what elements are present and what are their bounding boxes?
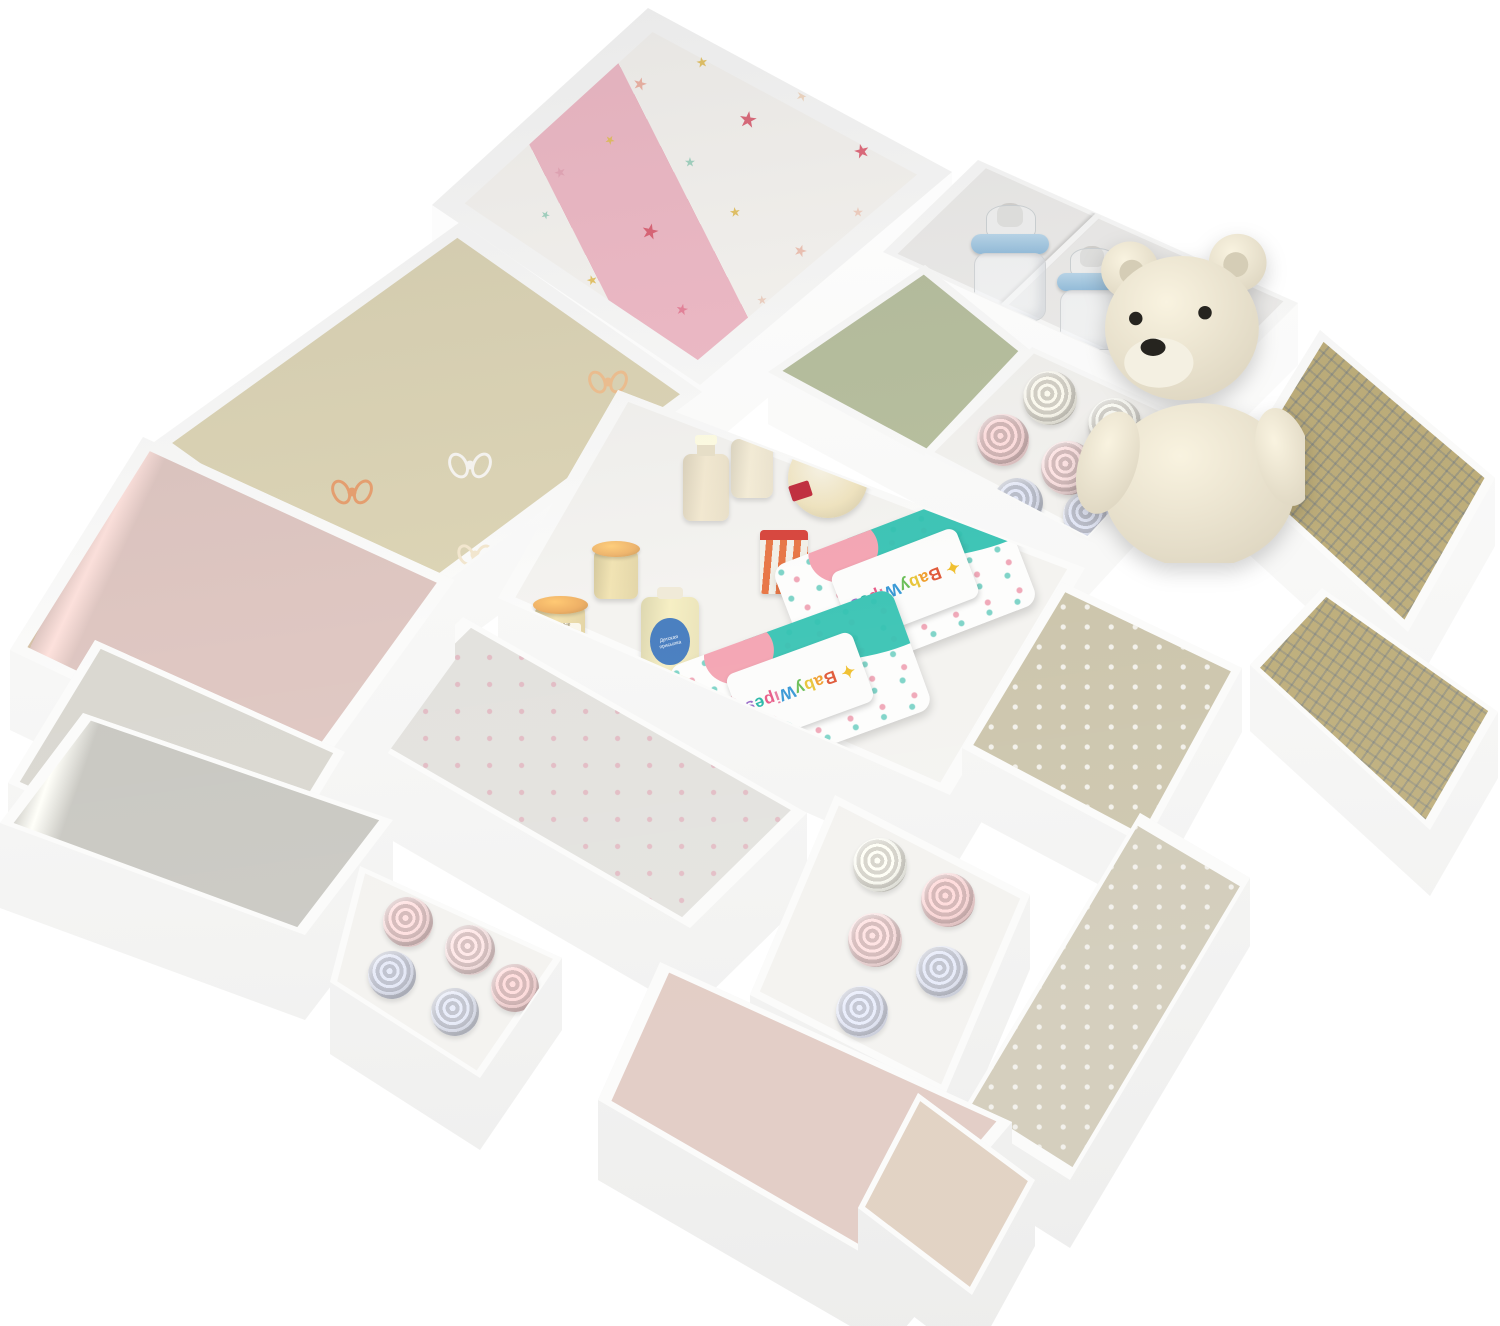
bin-inner-shading: [0, 0, 1500, 1326]
product-photo: ★★★★★★★★★★★★★★★★влажные салфеткиДетская …: [0, 0, 1500, 1326]
organizer-bins-scene: ★★★★★★★★★★★★★★★★влажные салфеткиДетская …: [0, 0, 1500, 1326]
bin-contents: [0, 0, 1500, 1326]
bin-opening: [0, 0, 1500, 1326]
bin-pink-cream-bin-bottom: [0, 0, 1500, 1326]
bin-walls: [0, 0, 1500, 1326]
